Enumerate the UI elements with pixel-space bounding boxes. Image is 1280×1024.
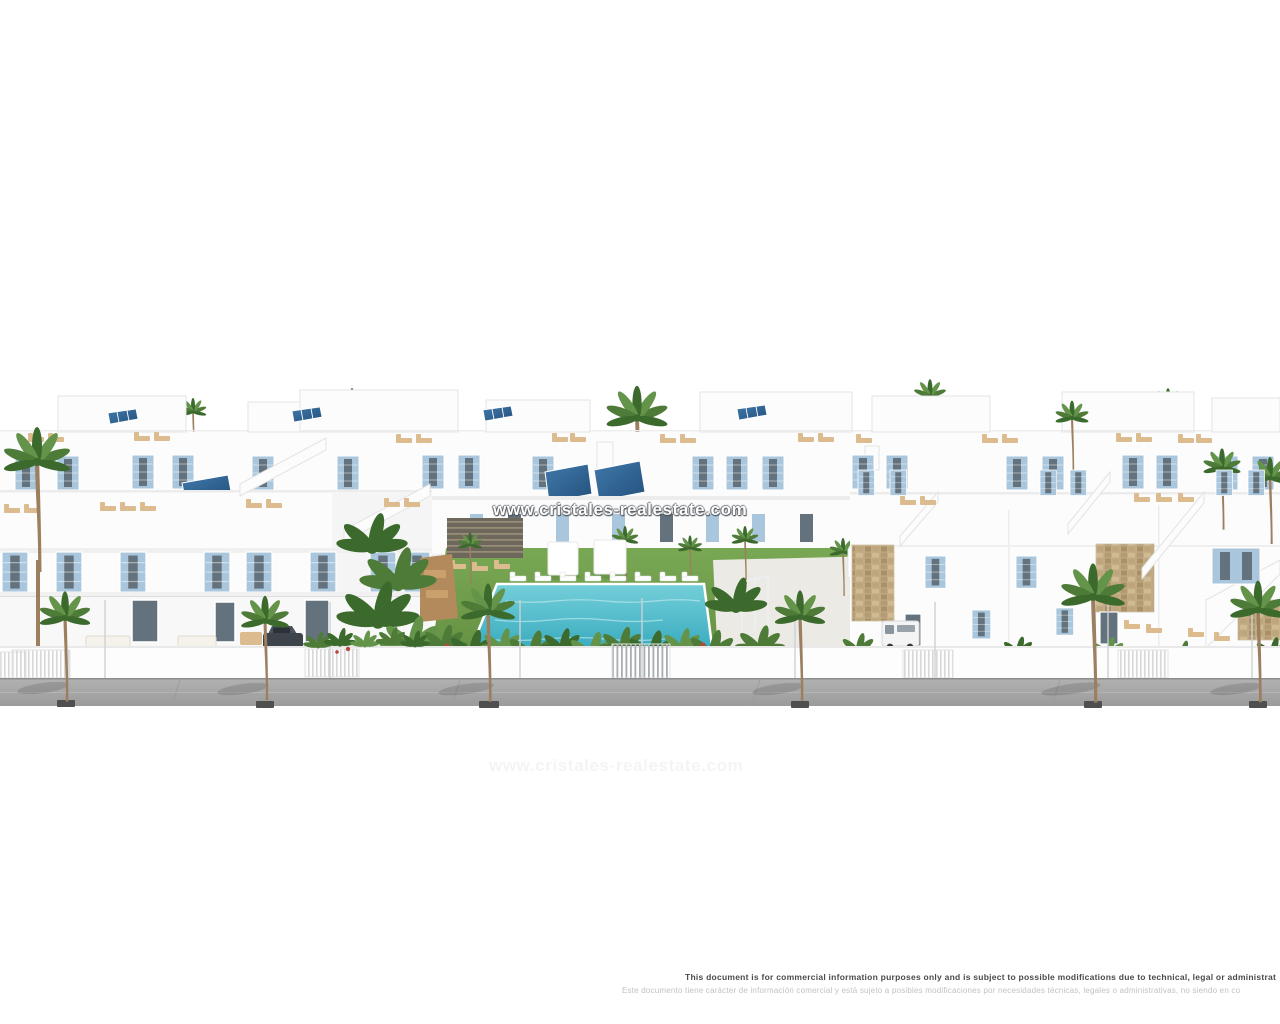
disclaimer-english: This document is for commercial informat…	[685, 972, 1276, 982]
watermark-text: www.cristales-realestate.com	[493, 500, 747, 520]
sidewalk-street	[0, 678, 1280, 708]
stone-accent-wall	[852, 545, 894, 621]
main-entrance-gate	[612, 644, 670, 678]
parked-white-van	[882, 621, 919, 650]
disclaimer-spanish: Este documento tiene carácter de informa…	[622, 986, 1240, 995]
watermark-text-faint: www.cristales-realestate.com	[489, 756, 743, 776]
page-root: www.cristales-realestate.com www.cristal…	[0, 0, 1280, 1024]
pergola	[447, 518, 523, 558]
